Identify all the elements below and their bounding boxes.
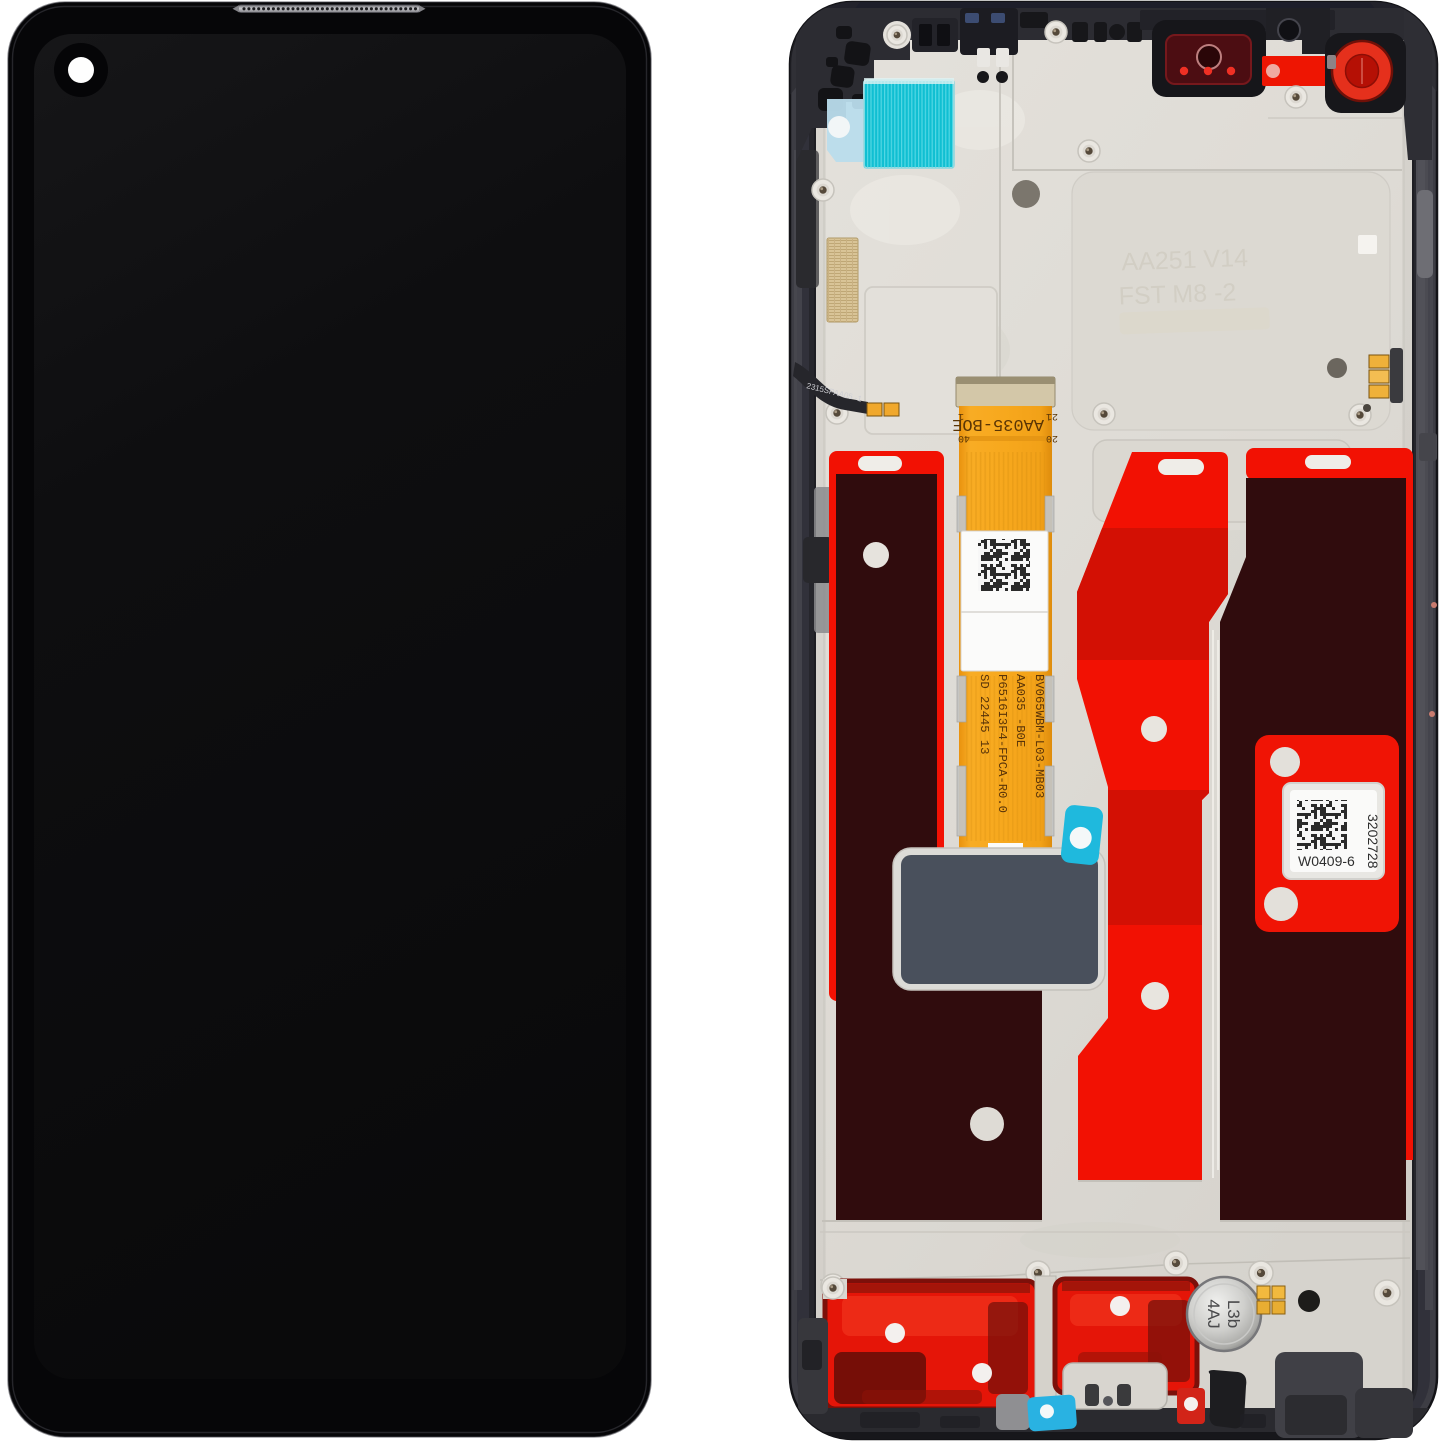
svg-text:21: 21 bbox=[1046, 410, 1058, 421]
svg-text:FST M8 -2: FST M8 -2 bbox=[1118, 278, 1237, 310]
svg-text:AA251 V14: AA251 V14 bbox=[1121, 244, 1248, 276]
svg-text:40: 40 bbox=[958, 432, 970, 443]
svg-text:W0409-6: W0409-6 bbox=[1298, 853, 1355, 869]
svg-text:3202728: 3202728 bbox=[1365, 814, 1381, 869]
svg-text:4AJ: 4AJ bbox=[1204, 1299, 1223, 1328]
svg-text:BV065WBM-L03-MB03: BV065WBM-L03-MB03 bbox=[1032, 674, 1046, 798]
svg-text:AA035 -B0E: AA035 -B0E bbox=[1013, 674, 1027, 747]
svg-text:L3b: L3b bbox=[1224, 1300, 1243, 1328]
svg-text:SD 22445 13: SD 22445 13 bbox=[977, 674, 991, 754]
svg-text:AA035-BOE: AA035-BOE bbox=[952, 414, 1044, 433]
svg-text:P6516I3F4-FPCA-R0.0: P6516I3F4-FPCA-R0.0 bbox=[995, 674, 1009, 813]
svg-text:1: 1 bbox=[958, 410, 964, 421]
svg-text:20: 20 bbox=[1046, 432, 1058, 443]
